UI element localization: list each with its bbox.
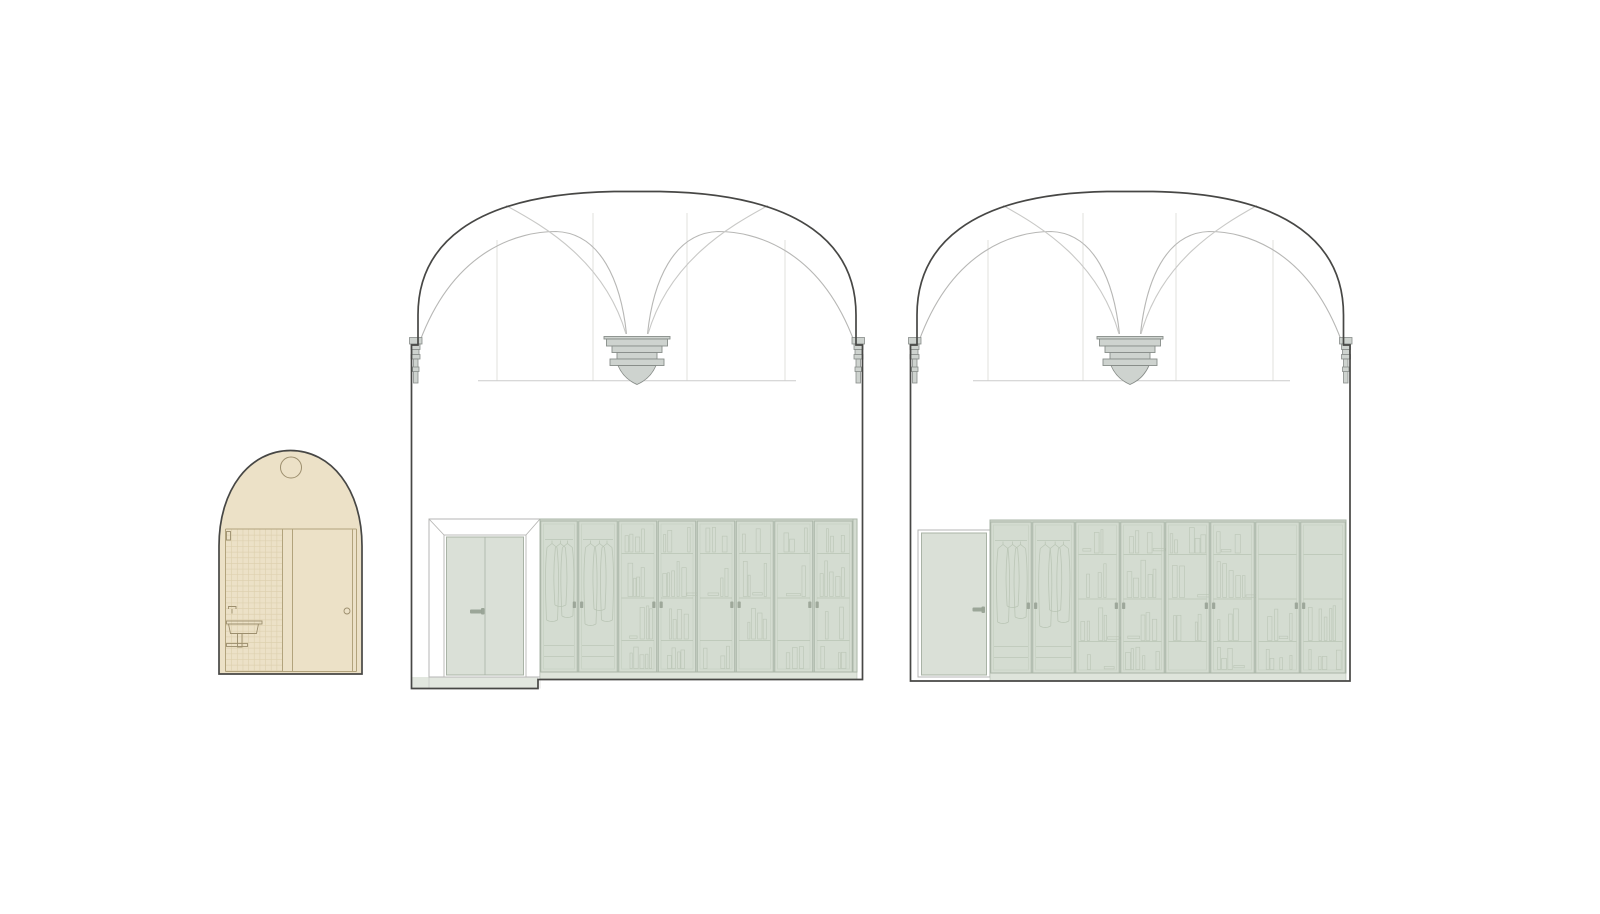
sheet-background	[0, 0, 1600, 914]
cabinet-handle	[730, 602, 733, 609]
bathroom-elevation	[219, 451, 362, 675]
doorway	[429, 519, 540, 677]
cabinet-door	[579, 521, 618, 672]
cabinet-handle	[808, 602, 811, 609]
cabinet-door	[736, 521, 773, 672]
cabinet-door	[1033, 522, 1075, 673]
cabinet-handle	[660, 602, 663, 609]
arch-outline	[219, 451, 362, 675]
door-handle	[470, 610, 482, 614]
cabinet-run	[990, 520, 1346, 681]
cabinet-handle	[1205, 603, 1208, 610]
cabinet-door	[658, 521, 700, 672]
cabinet-run	[540, 519, 857, 680]
cabinet-door	[775, 521, 813, 672]
elevation-sheet	[0, 0, 1600, 914]
door-handle-rose	[982, 607, 986, 614]
cabinet-handle	[816, 602, 819, 609]
cabinet-door	[814, 521, 852, 672]
cabinet-handle	[573, 602, 576, 609]
doorway	[918, 530, 990, 677]
cabinet-handle	[1034, 603, 1037, 610]
cabinet-door	[1211, 522, 1261, 673]
cabinet-side-panel	[853, 519, 857, 672]
cabinet-door	[1256, 522, 1300, 673]
cabinet-handle	[652, 602, 655, 609]
cabinet-door	[1121, 522, 1166, 673]
cabinet-handle	[1122, 603, 1125, 610]
cabinet-handle	[1027, 603, 1030, 610]
cabinet-plinth	[540, 672, 857, 680]
door-leaf	[922, 533, 987, 675]
cabinet-door	[991, 522, 1032, 673]
door-recess	[412, 677, 541, 689]
cabinet-handle	[1212, 603, 1215, 610]
cabinet-door	[1301, 522, 1346, 673]
cabinet-handle	[1295, 603, 1298, 610]
door-handle-rose	[481, 608, 485, 615]
recess-floor	[412, 677, 539, 689]
cabinet-door	[1166, 522, 1210, 673]
cabinet-handle	[738, 602, 741, 609]
cabinet-plinth	[990, 673, 1346, 681]
cabinet-door	[697, 521, 735, 672]
cabinet-door	[619, 521, 657, 672]
cabinet-door	[1076, 522, 1120, 673]
drawing-canvas	[0, 0, 1600, 914]
cabinet-handle	[580, 602, 583, 609]
cabinet-handle	[1115, 603, 1118, 610]
cabinet-door	[541, 521, 578, 672]
cabinet-handle	[1302, 603, 1305, 610]
